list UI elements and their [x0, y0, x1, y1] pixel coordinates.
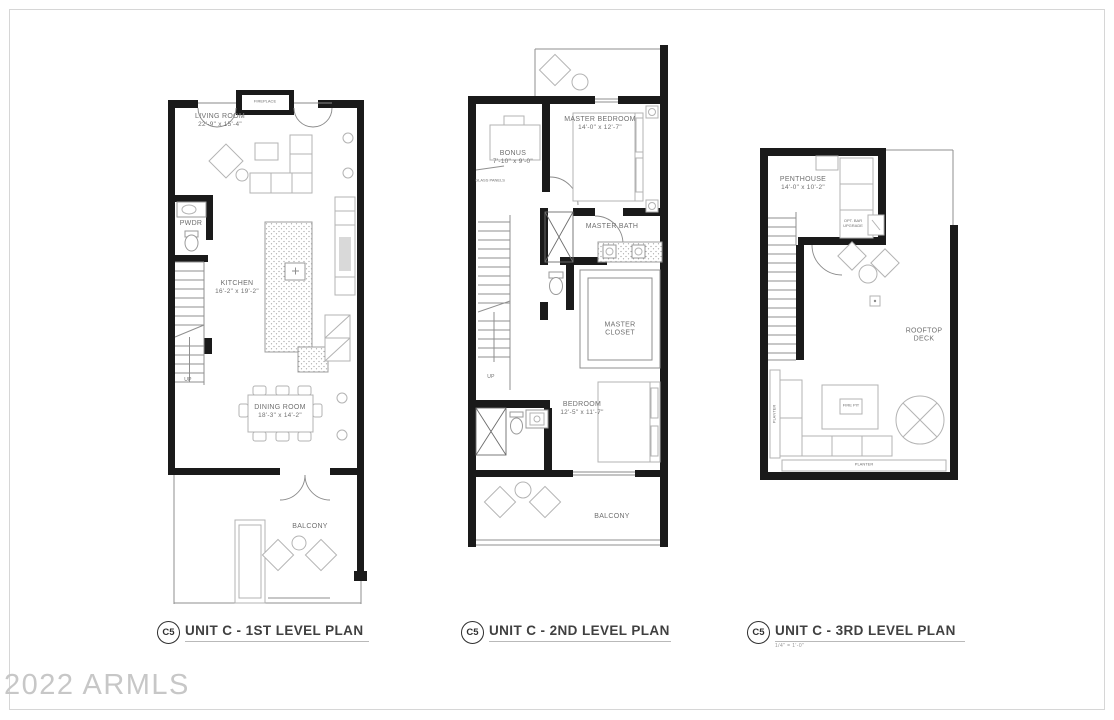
stairs — [768, 218, 796, 360]
living-furniture — [209, 133, 353, 193]
planter-left-label: PLANTER — [773, 405, 778, 423]
umbrella — [896, 396, 944, 444]
up-label: UP — [184, 377, 192, 383]
watermark: 2022 ARMLS — [4, 669, 190, 702]
balcony-label: BALCONY — [292, 523, 328, 531]
room-dims: 7'-10" x 9'-0" — [493, 158, 533, 166]
stairs — [478, 215, 510, 390]
balcony-furniture — [484, 482, 560, 518]
fireplace-label: FIREPLACE — [254, 100, 276, 105]
master-closet-label: MASTER CLOSET — [596, 322, 644, 339]
planter-bottom-label: PLANTER — [855, 463, 873, 468]
balcony-outline — [476, 540, 660, 545]
plan-level-3: PENTHOUSE 14'-0" x 10'-2" OPT. BAR UPGRA… — [748, 140, 968, 660]
master-bath-label: MASTER BATH — [586, 223, 639, 231]
plan1-titleblock: C5 UNIT C - 1ST LEVEL PLAN — [157, 621, 369, 644]
up-label: UP — [487, 374, 495, 380]
bonus-label: BONUS 7'-10" x 9'-0" — [493, 150, 533, 166]
room-name: MASTER BEDROOM — [564, 116, 635, 124]
room-name: DINING ROOM — [254, 404, 306, 412]
plan-level-2: BONUS 7'-10" x 9'-0" GLASS PANELS MASTER… — [460, 40, 675, 600]
fire-pit-label: FIRE PIT — [841, 404, 861, 409]
penthouse-door — [812, 245, 842, 275]
dining-room-label: DINING ROOM 18'-3" x 14'-2" — [254, 404, 306, 420]
laundry-closet — [476, 408, 506, 455]
penthouse-label: PENTHOUSE 14'-0" x 10'-2" — [780, 176, 826, 192]
plan2-title: UNIT C - 2ND LEVEL PLAN — [489, 623, 671, 642]
plan1-title: UNIT C - 1ST LEVEL PLAN — [185, 623, 369, 642]
closet-shelving — [580, 270, 660, 368]
kitchen-label: KITCHEN 16'-2" x 19'-2" — [215, 280, 259, 296]
sheet-ref-badge: C5 — [157, 621, 180, 644]
sheet-ref-badge: C5 — [747, 621, 770, 644]
bedroom-label: BEDROOM 12'-5" x 11'-7" — [560, 401, 603, 417]
room-name: BONUS — [493, 150, 533, 158]
shower — [545, 212, 573, 262]
glass-panel-mark — [476, 166, 504, 170]
deck-furniture — [539, 54, 588, 90]
room-name: PENTHOUSE — [780, 176, 826, 184]
room-name: LIVING ROOM — [195, 113, 245, 121]
balcony-furniture — [235, 520, 337, 603]
room-dims: 22'-9" x 15'-4" — [195, 121, 245, 129]
bed — [598, 382, 660, 462]
vanity — [598, 242, 662, 262]
balcony-doors — [280, 475, 330, 500]
room-dims: 14'-0" x 12'-7" — [564, 124, 635, 132]
room-name: BEDROOM — [560, 401, 603, 409]
floorplan-sheet: LIVING ROOM 22'-9" x 15'-4" FIREPLACE PW… — [0, 0, 1114, 720]
rooftop-deck-label: ROOFTOP DECK — [900, 328, 948, 345]
room-dims: 16'-2" x 19'-2" — [215, 288, 259, 296]
living-room-label: LIVING ROOM 22'-9" x 15'-4" — [195, 113, 245, 129]
kitchen-island — [265, 222, 328, 372]
room-dims: 12'-5" x 11'-7" — [560, 409, 603, 417]
plan3-title: UNIT C - 3RD LEVEL PLAN — [775, 623, 965, 642]
powder-label: PWDR — [180, 220, 203, 228]
plan2-titleblock: C5 UNIT C - 2ND LEVEL PLAN — [461, 621, 671, 644]
balcony-outline — [174, 475, 361, 604]
room-dims: 18'-3" x 14'-2" — [254, 412, 306, 420]
master-bedroom-label: MASTER BEDROOM 14'-0" x 12'-7" — [564, 116, 635, 132]
room-name: KITCHEN — [215, 280, 259, 288]
plan3-scale-note: 1/4" = 1'-0" — [775, 643, 965, 649]
toilet — [549, 272, 563, 295]
opt-bar-label: OPT. BAR UPGRADE — [838, 219, 868, 229]
sheet-ref-badge: C5 — [461, 621, 484, 644]
stairs — [175, 262, 204, 385]
level1-drawing — [158, 85, 373, 620]
kitchen-counter — [325, 197, 355, 361]
plan3-titleblock: C5 UNIT C - 3RD LEVEL PLAN 1/4" = 1'-0" — [747, 621, 965, 649]
plan-level-1: LIVING ROOM 22'-9" x 15'-4" FIREPLACE PW… — [158, 85, 373, 620]
glass-panels-label: GLASS PANELS — [475, 179, 505, 184]
balcony-label: BALCONY — [594, 513, 630, 521]
hall-bath — [510, 410, 548, 434]
room-dims: 14'-0" x 10'-2" — [780, 184, 826, 192]
bar-upgrade-box — [868, 215, 884, 235]
deck-dining — [838, 242, 899, 306]
